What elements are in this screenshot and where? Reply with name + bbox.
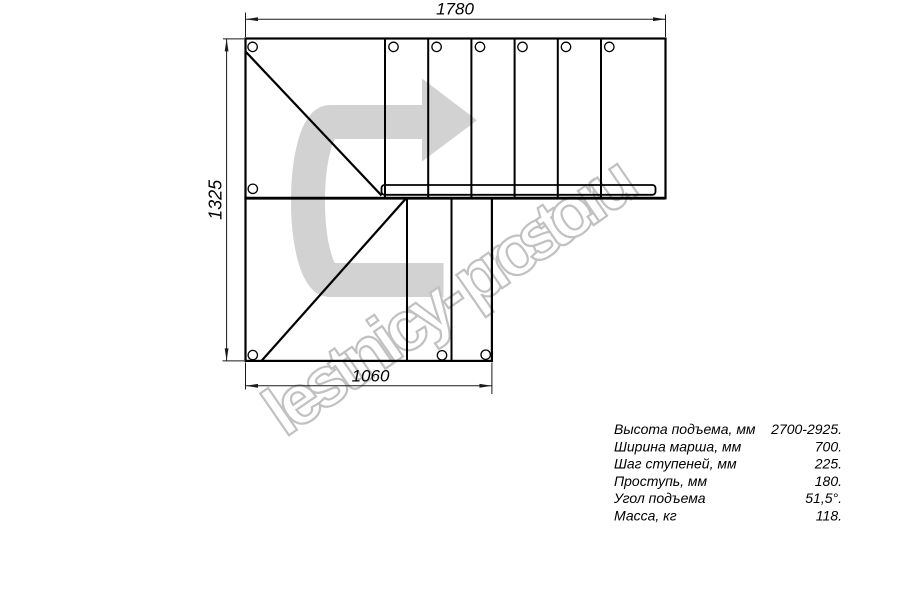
svg-text:700.: 700. bbox=[815, 438, 842, 454]
svg-text:225.: 225. bbox=[814, 456, 842, 472]
svg-text:118.: 118. bbox=[816, 507, 842, 523]
svg-text:Ширина марша, мм: Ширина марша, мм bbox=[614, 438, 742, 454]
svg-text:51,5°.: 51,5°. bbox=[805, 490, 842, 506]
svg-text:2700-2925.: 2700-2925. bbox=[770, 421, 842, 437]
svg-text:1325: 1325 bbox=[206, 179, 226, 220]
svg-text:Масса, кг: Масса, кг bbox=[614, 507, 677, 523]
svg-text:Проступь, мм: Проступь, мм bbox=[614, 473, 708, 489]
svg-text:1060: 1060 bbox=[352, 367, 390, 386]
svg-text:1780: 1780 bbox=[436, 0, 474, 19]
svg-text:180.: 180. bbox=[815, 473, 842, 489]
svg-text:Угол подъема: Угол подъема bbox=[613, 490, 706, 506]
svg-text:Шаг ступеней, мм: Шаг ступеней, мм bbox=[614, 456, 737, 472]
svg-text:Высота подъема, мм: Высота подъема, мм bbox=[614, 421, 756, 437]
